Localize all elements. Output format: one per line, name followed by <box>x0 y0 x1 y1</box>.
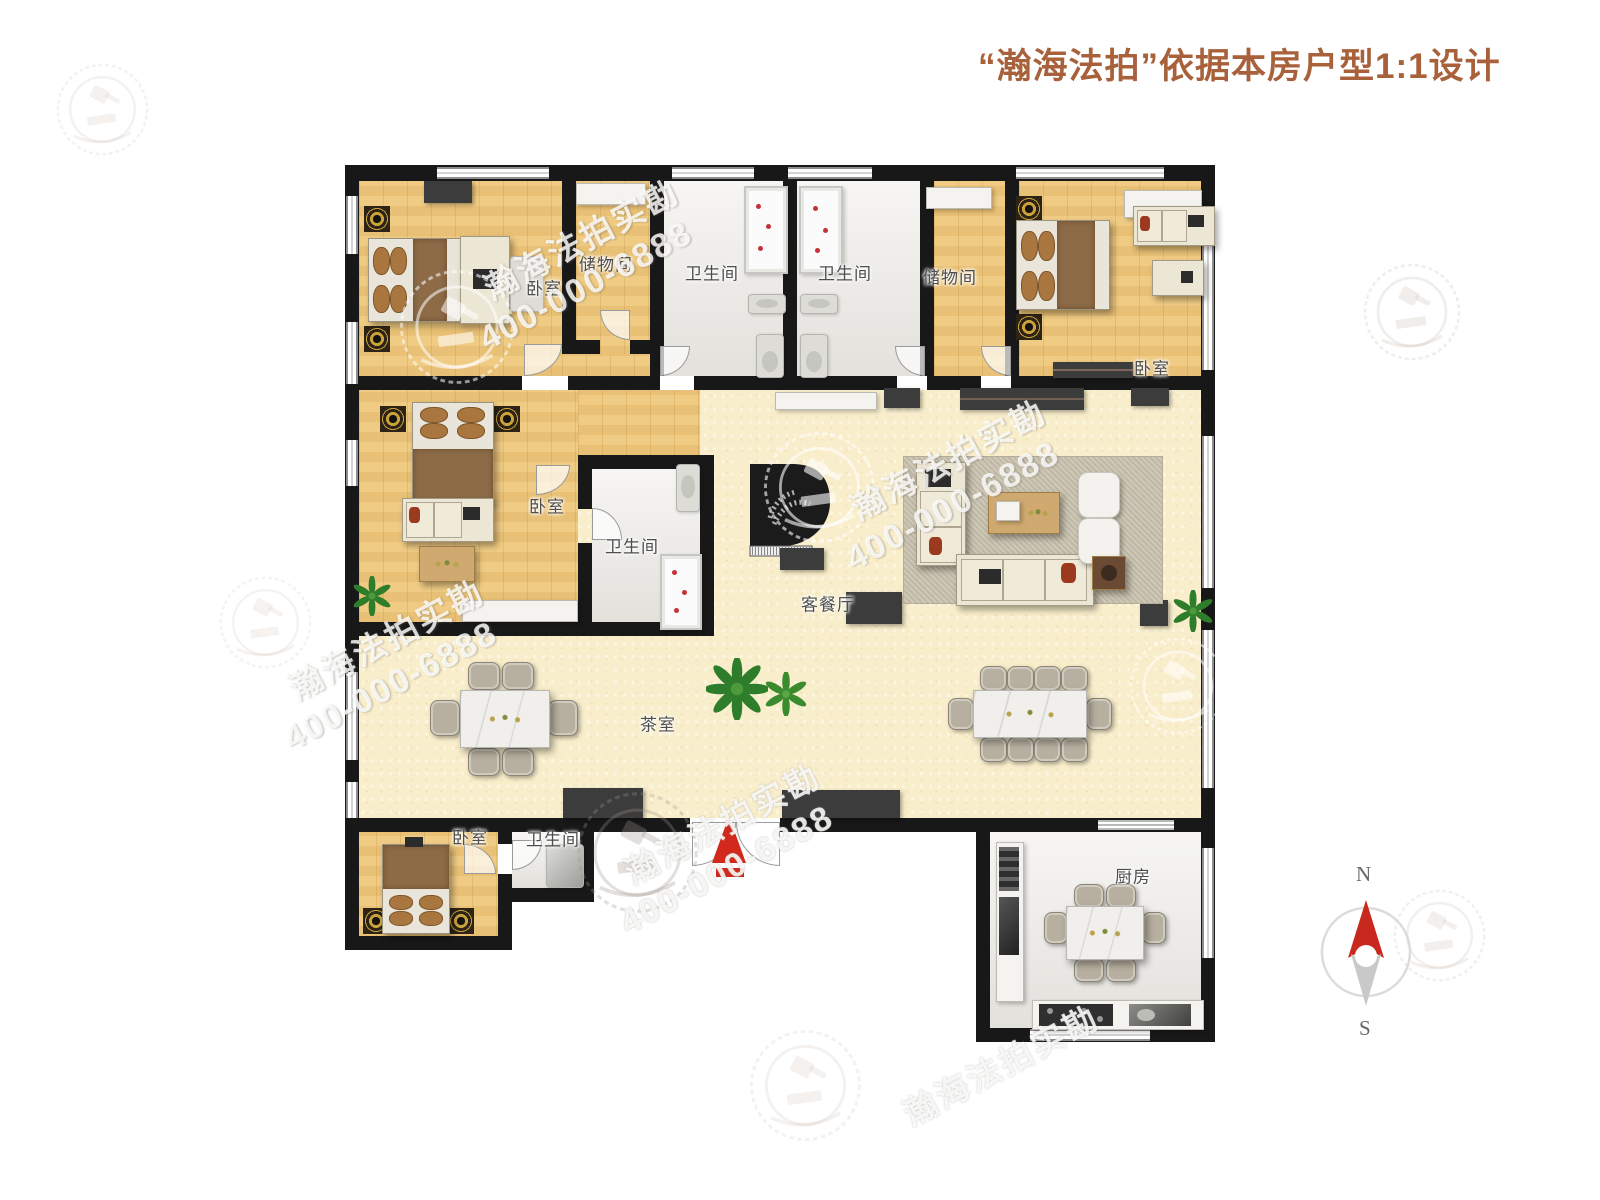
petal <box>674 608 679 613</box>
table-set <box>432 558 462 570</box>
chair <box>1034 737 1061 762</box>
window <box>788 167 872 179</box>
pillow <box>373 247 390 275</box>
speaker <box>364 326 390 352</box>
armchair <box>1078 472 1120 518</box>
petal <box>672 570 677 575</box>
chair <box>468 662 500 690</box>
wall <box>700 455 714 622</box>
room-label-storage-2: 储物间 <box>923 264 977 289</box>
room-label-bedroom-ml: 卧室 <box>529 493 565 518</box>
sofa-bottom <box>956 554 1094 606</box>
sink-basin <box>681 475 694 498</box>
window <box>1202 436 1214 588</box>
tea-room-table <box>460 690 550 748</box>
wall <box>568 376 660 390</box>
red-pillow <box>409 507 420 523</box>
floor-vestibule-1 <box>562 354 664 376</box>
window <box>437 167 549 179</box>
room-label-bedroom-tr: 卧室 <box>1134 355 1170 380</box>
sofa-cushion <box>1162 210 1187 242</box>
page-title: “瀚海法拍”依据本房户型1:1设计 <box>978 38 1501 89</box>
wall <box>345 936 512 950</box>
chair <box>548 700 578 736</box>
storage-shelf <box>926 187 992 209</box>
bathtub <box>660 554 702 630</box>
room-label-bath-1: 卫生间 <box>685 260 739 285</box>
chair <box>1074 884 1104 908</box>
pillow <box>389 911 413 926</box>
sliding-door <box>1098 820 1174 830</box>
table-setting <box>1084 925 1126 941</box>
speaker <box>494 406 520 432</box>
window <box>1016 167 1164 179</box>
compass-south-label: S <box>1359 1016 1371 1041</box>
floorplan-canvas: 卧室 储物间 卫生间 卫生间 储物间 卧室 卧室 卫生间 客餐厅 茶室 卧室 卫… <box>0 0 1600 1200</box>
wall <box>578 469 592 509</box>
floor-corridor-ml <box>578 390 700 455</box>
speaker <box>448 908 474 934</box>
sink <box>676 464 700 512</box>
room-label-bath-4: 卫生间 <box>526 826 580 851</box>
wall <box>694 376 897 390</box>
window <box>346 440 358 486</box>
bathtub <box>744 186 788 274</box>
chair <box>980 666 1007 691</box>
plant-icon <box>764 672 808 716</box>
chair <box>948 698 974 730</box>
window <box>346 322 358 384</box>
chair <box>1044 912 1068 944</box>
sink-basin <box>808 299 830 308</box>
chair <box>1034 666 1061 691</box>
speaker <box>380 406 406 432</box>
compass-icon <box>1318 890 1414 1014</box>
speaker <box>364 206 390 232</box>
piano-bench <box>780 548 824 570</box>
sofa <box>402 498 494 542</box>
chair <box>980 737 1007 762</box>
pillow <box>457 407 485 423</box>
petal <box>766 224 771 229</box>
chair <box>1007 666 1034 691</box>
kitchen-counter-left <box>996 842 1024 1002</box>
red-pillow <box>1140 216 1150 231</box>
wall <box>578 543 592 622</box>
toilet-bowl <box>762 351 778 372</box>
wall <box>498 874 512 936</box>
sofa-cushion <box>434 502 462 538</box>
wall <box>345 165 359 950</box>
sink-basin <box>1137 1009 1155 1021</box>
kitchen-table <box>1066 906 1144 960</box>
kitchen-sink <box>1129 1004 1191 1026</box>
table-centerpiece <box>484 711 526 727</box>
bed-blanket <box>383 845 449 889</box>
table-setting <box>995 706 1065 722</box>
brand-logo-watermark <box>1128 636 1228 736</box>
speaker <box>1016 314 1042 340</box>
chair <box>1086 698 1112 730</box>
room-label-tea: 茶室 <box>640 711 676 736</box>
sofa-cushion <box>1003 559 1045 601</box>
pillow <box>420 407 448 423</box>
table-item <box>1181 271 1193 283</box>
window <box>346 782 358 818</box>
tv <box>405 837 423 847</box>
petal <box>815 248 820 253</box>
side-table <box>1092 556 1126 590</box>
plant-icon <box>1172 590 1214 632</box>
bed-blanket <box>413 449 493 503</box>
petal <box>758 246 763 251</box>
bed <box>412 402 494 504</box>
tv-cabinet <box>884 388 920 408</box>
wardrobe <box>424 181 472 203</box>
brand-logo-watermark <box>748 1028 863 1143</box>
chair <box>1106 958 1136 982</box>
tv-cabinet <box>1131 388 1169 406</box>
brand-logo-watermark <box>55 62 150 157</box>
dark-pillow <box>463 507 480 520</box>
chair <box>430 700 460 736</box>
sofa <box>1133 206 1215 246</box>
pillow <box>389 895 413 910</box>
fridge <box>999 897 1019 955</box>
chair <box>1061 666 1088 691</box>
bed <box>382 844 450 934</box>
speaker <box>1016 196 1042 222</box>
chair <box>1061 737 1088 762</box>
tv-cabinet <box>1053 362 1133 378</box>
table-set <box>1026 507 1050 519</box>
room-label-bath-3: 卫生间 <box>605 533 659 558</box>
toilet-bowl <box>806 351 822 372</box>
tray <box>996 501 1020 521</box>
chair <box>1074 958 1104 982</box>
pillow <box>420 423 448 439</box>
room-label-bath-2: 卫生间 <box>818 260 872 285</box>
compass-north-label: N <box>1356 862 1371 887</box>
bed-blanket <box>1057 221 1095 309</box>
pillow <box>1038 271 1055 301</box>
petal <box>756 204 761 209</box>
window <box>672 167 754 179</box>
chair <box>1007 737 1034 762</box>
pillow <box>1021 231 1038 261</box>
room-label-kitchen: 厨房 <box>1115 863 1151 888</box>
wall <box>976 818 990 1042</box>
speaker-top <box>1101 565 1117 581</box>
petal <box>813 206 818 211</box>
dark-pillow <box>1188 215 1204 227</box>
chair <box>502 662 534 690</box>
window <box>1202 848 1214 958</box>
pillow <box>419 895 443 910</box>
pillow <box>419 911 443 926</box>
pillow <box>1021 271 1038 301</box>
sink-basin <box>756 299 778 308</box>
appliance-stack <box>999 847 1019 891</box>
pillow <box>373 285 390 313</box>
chair <box>1142 912 1166 944</box>
brand-logo-watermark <box>1362 262 1462 362</box>
coffee-table <box>1152 260 1204 296</box>
chair <box>1106 884 1136 908</box>
window <box>346 196 358 254</box>
pillow <box>457 423 485 439</box>
toilet <box>756 334 784 378</box>
petal <box>823 228 828 233</box>
vanity <box>775 392 877 410</box>
room-label-bedroom-bl: 卧室 <box>452 824 488 849</box>
red-pillow <box>1061 563 1076 583</box>
chair <box>468 748 500 776</box>
dark-pillow <box>979 569 1001 584</box>
chair <box>502 748 534 776</box>
wall <box>498 832 512 844</box>
toilet <box>800 334 828 378</box>
dining-table <box>973 690 1087 738</box>
petal <box>682 590 687 595</box>
plant-icon <box>706 658 768 720</box>
sink <box>800 294 838 314</box>
bed <box>1016 220 1110 310</box>
room-label-living: 客餐厅 <box>801 591 855 616</box>
pillow <box>1038 231 1055 261</box>
sink <box>748 294 786 314</box>
